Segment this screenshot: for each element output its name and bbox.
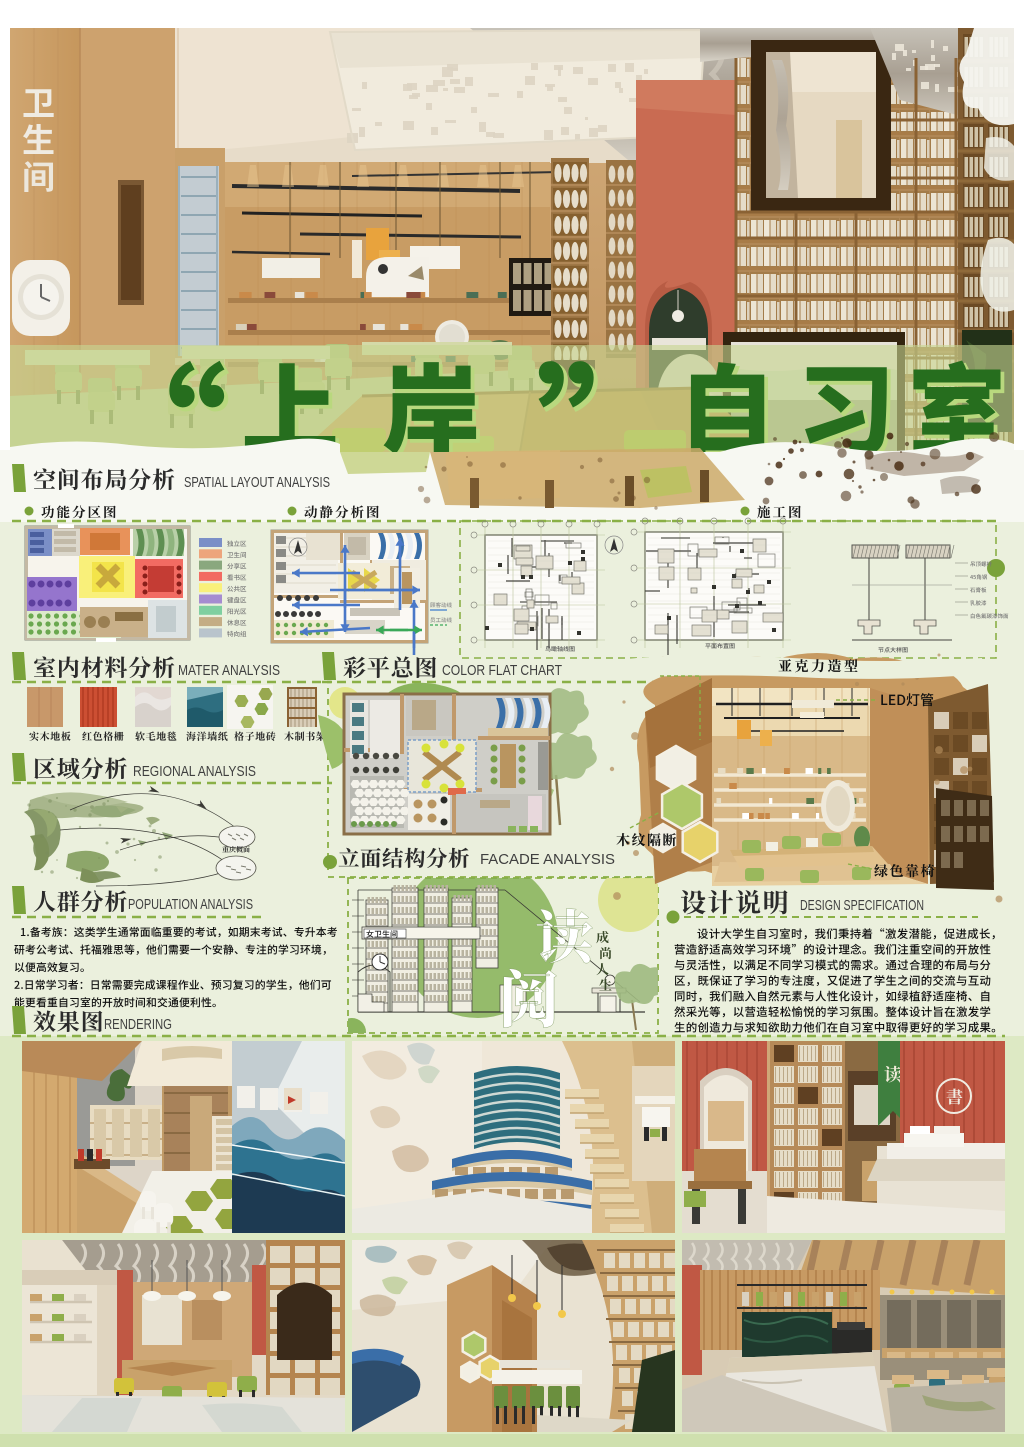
svg-text:FACADE ANALYSIS: FACADE ANALYSIS [480,851,615,868]
svg-text:REGIONAL ANALYSIS: REGIONAL ANALYSIS [133,763,256,780]
svg-text:RENDERING: RENDERING [104,1016,172,1033]
svg-text:COLOR FLAT CHART: COLOR FLAT CHART [442,662,562,679]
svg-text:SPATIAL LAYOUT ANALYSIS: SPATIAL LAYOUT ANALYSIS [184,474,330,491]
svg-text:POPULATION ANALYSIS: POPULATION ANALYSIS [128,896,253,913]
svg-text:DESIGN SPECIFICATION: DESIGN SPECIFICATION [800,897,924,914]
svg-text:MATER ANALYSIS: MATER ANALYSIS [178,662,280,679]
